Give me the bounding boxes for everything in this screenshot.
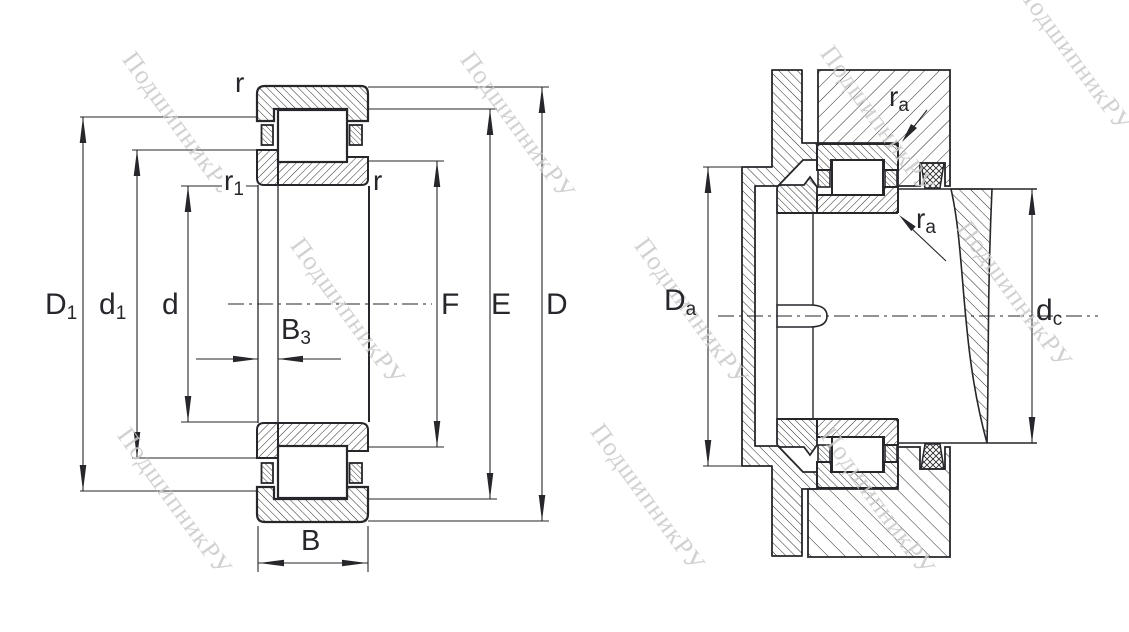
label-d: d: [162, 290, 179, 323]
inner-ring-lower: [278, 423, 368, 451]
label-d1: d1: [99, 290, 126, 323]
label-E: E: [491, 290, 511, 323]
label-Da: Da: [664, 286, 696, 319]
left-view-bearing-section: [80, 86, 549, 572]
thrust-washer-lower: [257, 423, 278, 458]
diagram-canvas: ПодшипникРУ ПодшипникРУ ПодшипникРУ Подш…: [0, 0, 1129, 632]
cage-left-upper: [262, 125, 274, 145]
angle-ring-lower: [777, 419, 817, 455]
label-r-inner-right: r: [373, 167, 382, 199]
cage-right-upper-right: [885, 170, 897, 187]
label-r-outer-top: r: [235, 69, 244, 101]
roller-upper-right: [832, 160, 883, 195]
cage-right-upper: [350, 125, 363, 145]
label-ra-bottom: ra: [916, 205, 936, 237]
seal-upper: [921, 163, 944, 188]
roller-lower-right: [832, 437, 883, 472]
cage-right-lower-right: [885, 445, 897, 462]
thrust-washer-upper: [257, 150, 278, 185]
cage-right-lower: [350, 463, 363, 483]
roller-lower: [278, 446, 347, 498]
label-D: D: [546, 290, 568, 323]
label-B3: B3: [281, 316, 311, 348]
inner-ring-upper: [278, 157, 368, 185]
label-ra-top: ra: [889, 83, 909, 115]
angle-ring-upper: [777, 177, 817, 213]
cage-left-lower: [262, 463, 274, 483]
label-r1: r1: [222, 167, 246, 199]
label-D1: D1: [45, 290, 77, 323]
label-dc: dc: [1036, 296, 1062, 329]
label-F: F: [441, 290, 459, 323]
cage-left-lower-right: [818, 445, 830, 462]
cage-left-upper-right: [818, 170, 830, 187]
label-B: B: [301, 527, 320, 559]
seal-lower: [921, 444, 944, 469]
roller-upper: [278, 110, 347, 162]
